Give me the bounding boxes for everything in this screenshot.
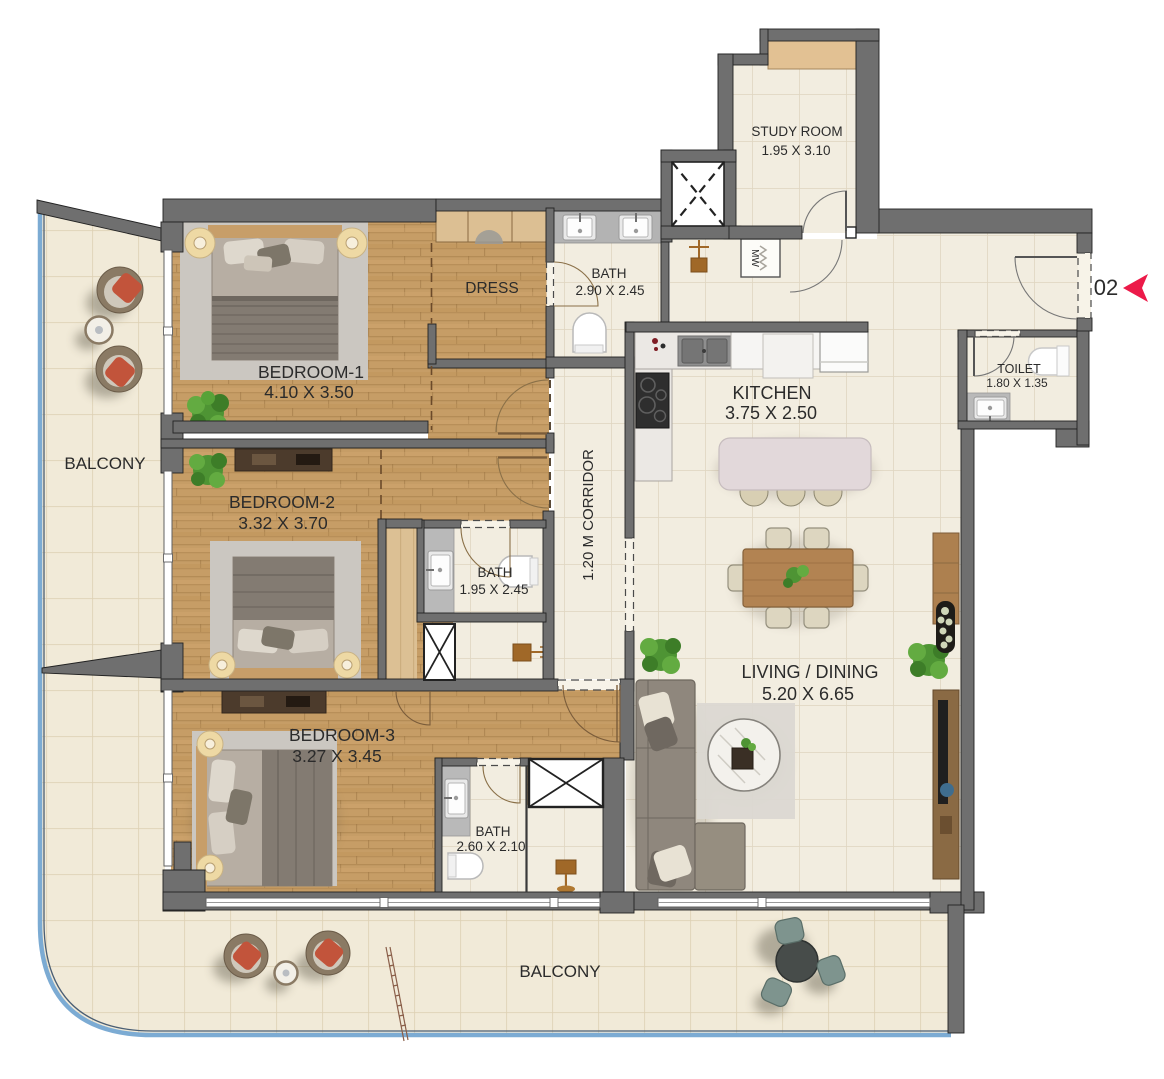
svg-text:BEDROOM-3: BEDROOM-3 (289, 725, 395, 745)
svg-text:1.80 X 1.35: 1.80 X 1.35 (986, 376, 1048, 390)
svg-text:BATH: BATH (591, 266, 626, 281)
svg-text:TOILET: TOILET (997, 362, 1041, 376)
svg-text:DRESS: DRESS (465, 280, 518, 297)
svg-text:KITCHEN: KITCHEN (732, 383, 811, 403)
svg-text:BEDROOM-1: BEDROOM-1 (258, 362, 364, 382)
svg-text:BALCONY: BALCONY (519, 962, 600, 981)
svg-text:BEDROOM-2: BEDROOM-2 (229, 492, 335, 512)
svg-text:3.27 X 3.45: 3.27 X 3.45 (292, 746, 382, 766)
svg-text:2.60 X 2.10: 2.60 X 2.10 (456, 839, 525, 854)
svg-text:BATH: BATH (477, 565, 512, 580)
svg-text:MW: MW (749, 249, 760, 267)
svg-text:5.20 X 6.65: 5.20 X 6.65 (762, 684, 854, 704)
svg-text:3.32 X 3.70: 3.32 X 3.70 (238, 513, 328, 533)
svg-text:1.95 X 2.45: 1.95 X 2.45 (459, 582, 528, 597)
svg-text:BALCONY: BALCONY (64, 454, 145, 473)
svg-text:02: 02 (1094, 275, 1118, 300)
svg-text:BATH: BATH (475, 824, 510, 839)
svg-text:3.75 X 2.50: 3.75 X 2.50 (725, 403, 817, 423)
svg-text:LIVING / DINING: LIVING / DINING (741, 662, 878, 682)
svg-text:4.10 X 3.50: 4.10 X 3.50 (264, 382, 354, 402)
svg-text:2.90 X 2.45: 2.90 X 2.45 (575, 283, 644, 298)
svg-text:1.95 X 3.10: 1.95 X 3.10 (761, 143, 830, 158)
svg-text:STUDY ROOM: STUDY ROOM (751, 124, 842, 139)
svg-text:1.20 M CORRIDOR: 1.20 M CORRIDOR (580, 449, 597, 581)
